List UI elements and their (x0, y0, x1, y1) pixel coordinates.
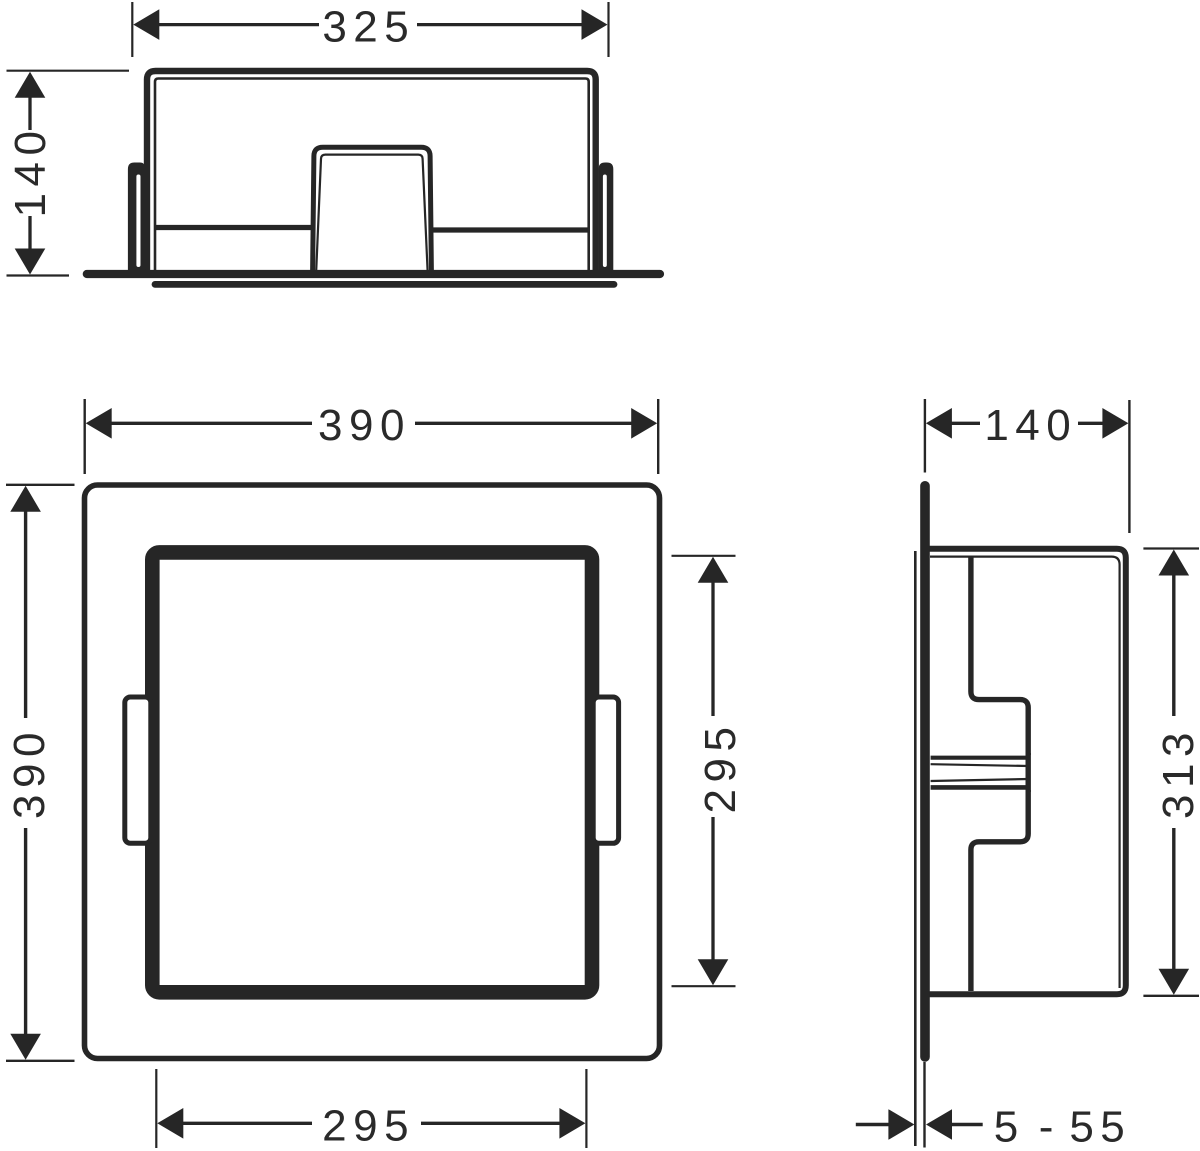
svg-text:325: 325 (322, 3, 415, 52)
svg-text:140: 140 (6, 125, 55, 218)
svg-text:5: 5 (994, 1103, 1025, 1151)
svg-text:295: 295 (696, 721, 745, 814)
svg-text:295: 295 (322, 1102, 415, 1151)
svg-text:55: 55 (1069, 1103, 1131, 1151)
svg-text:140: 140 (984, 401, 1077, 450)
svg-text:313: 313 (1154, 726, 1200, 819)
svg-text:-: - (1039, 1103, 1060, 1151)
svg-text:390: 390 (318, 401, 411, 450)
svg-text:390: 390 (5, 726, 54, 819)
